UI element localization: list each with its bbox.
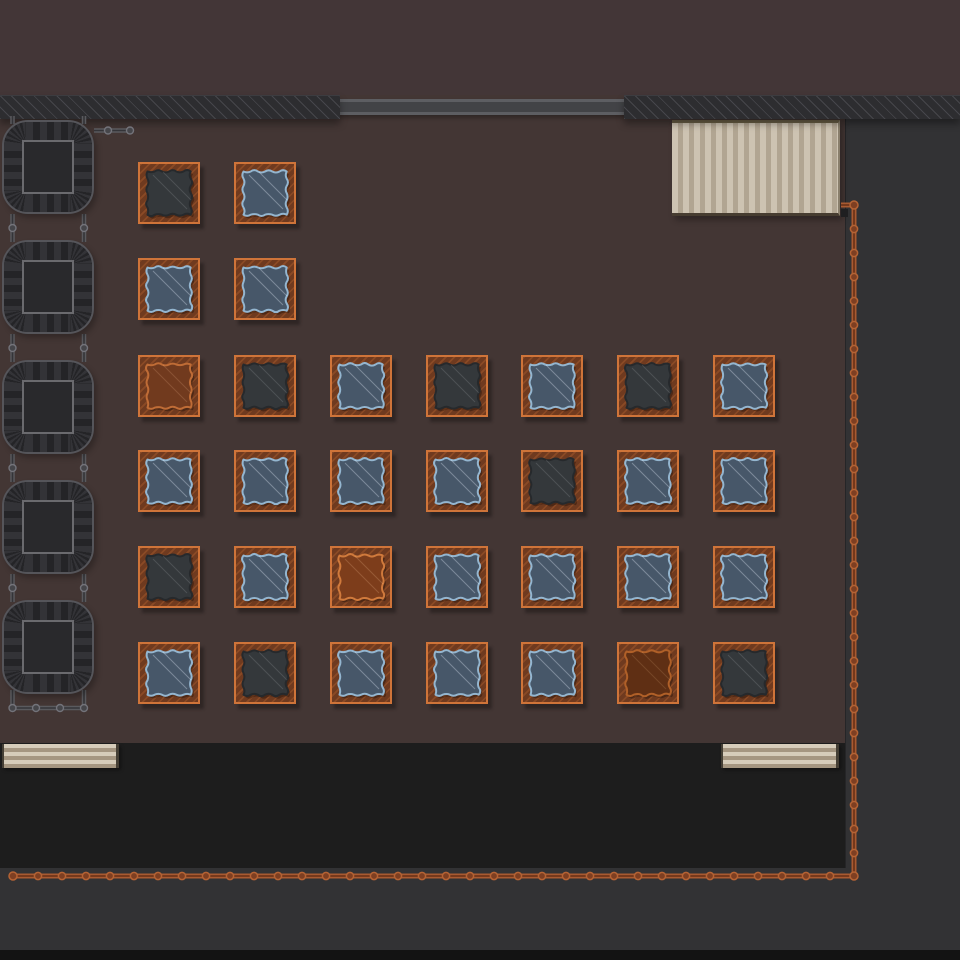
crate-blue[interactable] [617, 450, 679, 512]
crate-cloth [619, 357, 677, 415]
machine-inner-frame [22, 620, 74, 674]
crate-cloth [332, 548, 390, 606]
crate-blue[interactable] [521, 642, 583, 704]
crate-cloth [619, 548, 677, 606]
crate-blue[interactable] [521, 355, 583, 417]
crate-cloth [236, 260, 294, 318]
machine[interactable] [2, 360, 94, 454]
machine[interactable] [2, 480, 94, 574]
crate-cloth [236, 548, 294, 606]
wall-segment-left [0, 95, 340, 119]
crate-cloth [140, 644, 198, 702]
crate-leather[interactable] [138, 355, 200, 417]
crate-cloth [140, 260, 198, 318]
crate-blue[interactable] [234, 258, 296, 320]
crate-cloth [619, 644, 677, 702]
crate-dark[interactable] [234, 642, 296, 704]
crate-cloth [715, 644, 773, 702]
machine-inner-frame [22, 500, 74, 554]
crate-cloth [140, 452, 198, 510]
machine-corner-bolt [4, 482, 9, 487]
crate-dark[interactable] [138, 162, 200, 224]
crate-dark[interactable] [138, 546, 200, 608]
crate-blue[interactable] [234, 450, 296, 512]
crate-blue[interactable] [330, 450, 392, 512]
machine-inner-frame [22, 260, 74, 314]
crate-leather_dark[interactable] [617, 642, 679, 704]
crate-blue[interactable] [138, 258, 200, 320]
crate-blue[interactable] [713, 355, 775, 417]
crate-cloth [523, 644, 581, 702]
crate-cloth [715, 452, 773, 510]
awning-post [841, 209, 848, 217]
crate-cloth [140, 548, 198, 606]
crate-cloth [332, 357, 390, 415]
game-viewport: { "scene": { "type": "top-down-game-scen… [0, 0, 960, 960]
crate-cloth [523, 548, 581, 606]
crate-blue[interactable] [426, 642, 488, 704]
crate-cloth [332, 452, 390, 510]
window-bar [338, 99, 626, 115]
crate-dark[interactable] [426, 355, 488, 417]
crate-dark[interactable] [234, 355, 296, 417]
machine-corner-bolt [4, 362, 9, 367]
bottom-edge-strip [0, 950, 960, 960]
crate-blue[interactable] [330, 642, 392, 704]
crate-blue[interactable] [234, 162, 296, 224]
crate-blue[interactable] [426, 450, 488, 512]
crate-cloth [523, 357, 581, 415]
crate-blue[interactable] [138, 642, 200, 704]
crate-cloth [523, 452, 581, 510]
machine[interactable] [2, 120, 94, 214]
wall-segment-right [624, 95, 960, 119]
machine-corner-bolt [4, 602, 9, 607]
crate-cloth [715, 357, 773, 415]
crate-blue[interactable] [617, 546, 679, 608]
crate-blue[interactable] [713, 546, 775, 608]
top-exterior-band [0, 0, 960, 95]
crate-cloth [428, 357, 486, 415]
bench-right[interactable] [721, 744, 839, 768]
machine-corner-bolt [4, 242, 9, 247]
bottom-service-area [0, 868, 960, 950]
machine[interactable] [2, 240, 94, 334]
crate-blue[interactable] [138, 450, 200, 512]
crate-cloth [428, 644, 486, 702]
side-service-area [845, 118, 960, 950]
machine-inner-frame [22, 140, 74, 194]
machine[interactable] [2, 600, 94, 694]
crate-blue[interactable] [426, 546, 488, 608]
crate-dark[interactable] [521, 450, 583, 512]
crate-blue[interactable] [330, 355, 392, 417]
crate-cloth [140, 357, 198, 415]
crate-dark[interactable] [617, 355, 679, 417]
crate-cloth [140, 164, 198, 222]
crate-cloth [428, 548, 486, 606]
dark-room [0, 743, 845, 868]
crate-dark[interactable] [713, 642, 775, 704]
machine-corner-bolt [4, 122, 9, 127]
crate-cloth [236, 644, 294, 702]
crate-cloth [332, 644, 390, 702]
crate-blue[interactable] [234, 546, 296, 608]
crate-cloth [428, 452, 486, 510]
crate-cloth [236, 357, 294, 415]
bench-left[interactable] [2, 744, 119, 768]
crate-leather_bright[interactable] [330, 546, 392, 608]
crate-blue[interactable] [713, 450, 775, 512]
crate-cloth [236, 164, 294, 222]
striped-awning[interactable] [672, 120, 840, 216]
machine-inner-frame [22, 380, 74, 434]
crate-cloth [715, 548, 773, 606]
crate-cloth [619, 452, 677, 510]
crate-blue[interactable] [521, 546, 583, 608]
crate-cloth [236, 452, 294, 510]
